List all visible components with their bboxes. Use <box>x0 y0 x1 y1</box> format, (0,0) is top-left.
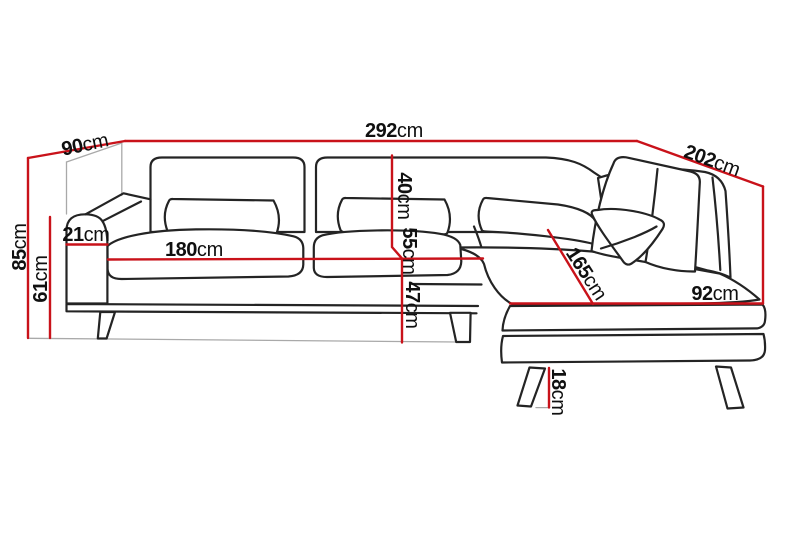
chaise-mattress-front <box>503 305 766 331</box>
chaise-leg-front <box>518 368 546 407</box>
dim-label-total-height: 85cm <box>10 223 30 270</box>
guide-floor-line <box>28 338 457 342</box>
front-leg-middle <box>450 313 471 342</box>
front-leg-left <box>98 312 115 339</box>
dim-label-total-width: 292cm <box>365 121 423 141</box>
sofa-dimension-diagram: 292cm 90cm 202cm 85cm 61cm 21cm 180cm 40… <box>0 0 800 533</box>
armrest-top-outer-edge <box>86 193 151 214</box>
dim-label-chaise-width: 92cm <box>691 284 738 304</box>
armrest-top-inner-edge <box>103 202 142 222</box>
seat-cushion-middle <box>314 230 462 277</box>
dim-label-seat-depth: 55cm <box>399 227 419 274</box>
dim-label-backrest-height: 40cm <box>394 172 414 219</box>
dim-label-seat-width: 180cm <box>165 240 223 260</box>
dim-label-seat-height: 47cm <box>402 281 422 328</box>
dim-label-armrest-height: 61cm <box>31 255 51 302</box>
dim-label-leg-height: 18cm <box>548 368 568 415</box>
chaise-leg-right <box>716 367 744 409</box>
dim-label-armrest-width: 21cm <box>62 225 109 245</box>
chaise-platform <box>501 334 765 363</box>
